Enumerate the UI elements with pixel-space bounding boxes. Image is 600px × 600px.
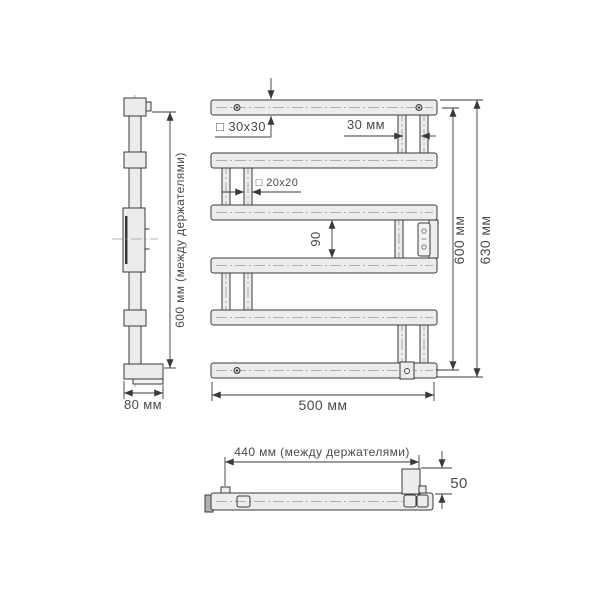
- side-view: 600 мм (между держателями) 80 мм: [112, 95, 187, 412]
- right-holder-tab: [419, 486, 426, 493]
- side-frame-plate-edge: [125, 216, 128, 264]
- holder-clip-mid: [404, 495, 416, 507]
- brand-plate: [418, 223, 430, 256]
- left-holder-tab: [221, 487, 230, 493]
- profile-30x30-label: □ 30x30: [216, 119, 266, 134]
- hole-center: [236, 106, 238, 108]
- dim-80-label: 80 мм: [124, 397, 162, 412]
- dim-30mm-label: 30 мм: [347, 117, 385, 132]
- fitting-hole: [405, 369, 410, 374]
- bottom-view: 440 мм (между держателями) 50: [205, 445, 468, 512]
- dim-50-label: 50: [450, 475, 468, 492]
- side-top-holder: [124, 98, 146, 116]
- side-bottom-foot-bracket: [133, 379, 163, 384]
- tube-pair-upper-left: [222, 163, 252, 210]
- right-holder-block: [402, 469, 420, 494]
- drawing-canvas: 600 мм (между держателями) 80 мм: [0, 0, 600, 600]
- mounting-hole-bottom-left: [234, 368, 240, 374]
- dim-440-label: 440 мм (между держателями): [234, 445, 410, 459]
- profile-20x20-label: □ 20x20: [256, 177, 298, 189]
- hole-center: [236, 369, 238, 371]
- tube-pair-top-right: [398, 110, 428, 158]
- side-holder-upper: [124, 152, 146, 168]
- dim-90-label: 90: [308, 231, 323, 246]
- holder-clip-right: [417, 495, 428, 507]
- front-view: □ 30x30 30 мм □ 20x20 90 600 мм 630 мм 5…: [211, 78, 493, 413]
- mounting-hole-top-right: [416, 105, 422, 111]
- dim-600-between-holders-label: 600 мм (между держателями): [173, 152, 187, 328]
- mounting-hole-top-left: [234, 105, 240, 111]
- side-holder-lower: [124, 310, 146, 326]
- tube-pair-bottom-right: [398, 320, 428, 368]
- bottom-fitting-box: [400, 362, 414, 379]
- technical-drawing-towel-rail: 600 мм (между держателями) 80 мм: [0, 0, 600, 600]
- side-bottom-foot: [124, 364, 163, 379]
- dim-500-label: 500 мм: [299, 397, 348, 413]
- side-top-holder-tab: [146, 102, 151, 111]
- hole-center: [418, 106, 420, 108]
- dim-600r-label: 600 мм: [451, 216, 467, 265]
- dim-630-label: 630 мм: [477, 216, 493, 265]
- tube-pair-lower-left: [222, 268, 252, 315]
